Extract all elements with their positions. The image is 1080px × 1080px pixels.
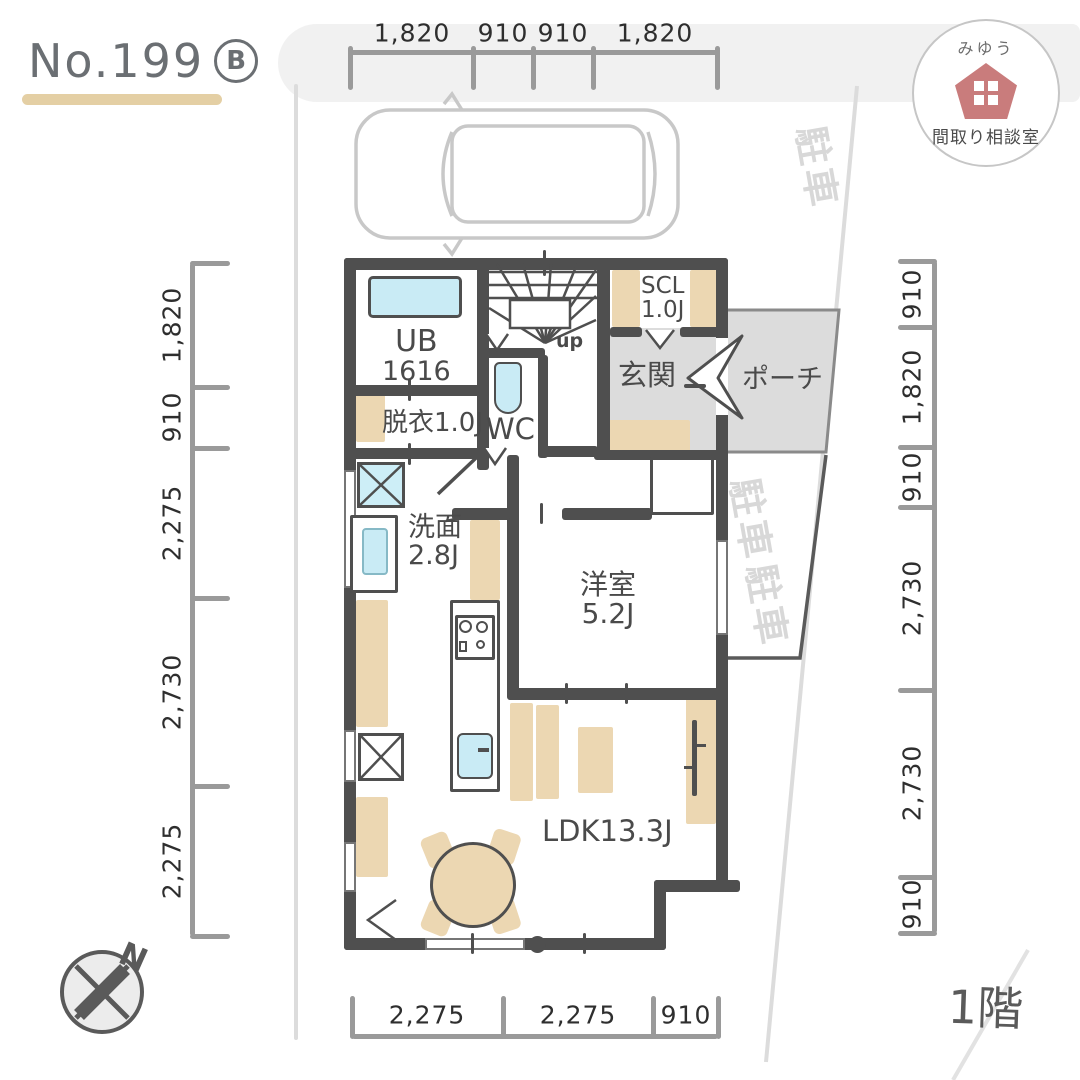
floor-label: 1階 [947, 971, 1025, 1040]
scl-door-swing [646, 330, 674, 348]
label-stairs-up: up [556, 332, 583, 352]
hall-angled-wall [438, 458, 476, 494]
label-scl: SCL 1.0J [641, 274, 684, 322]
label-ub: UB 1616 [382, 326, 451, 386]
label-senmen: 洗面 2.8J [408, 514, 462, 571]
label-ldk: LDK13.3J [542, 816, 673, 846]
stair-landing [510, 300, 570, 328]
label-wc: WC [486, 414, 535, 444]
label-datsui: 脱衣1.0J [382, 410, 483, 437]
genkan-dash [684, 384, 706, 388]
floorplan-canvas: No.199 B みゆう 間取り相談室 1,820 910 910 1,820 … [0, 0, 1080, 1080]
plan-linework [0, 0, 1080, 1080]
entry-direction-arrow [688, 336, 742, 418]
back-door-swing [368, 900, 396, 940]
label-yoshitsu: 洋室 5.2J [580, 570, 636, 629]
stair-arrow [486, 334, 508, 350]
wc-door-swing [484, 448, 506, 464]
label-porch: ポーチ [742, 366, 823, 394]
label-genkan: 玄関 [618, 360, 676, 390]
